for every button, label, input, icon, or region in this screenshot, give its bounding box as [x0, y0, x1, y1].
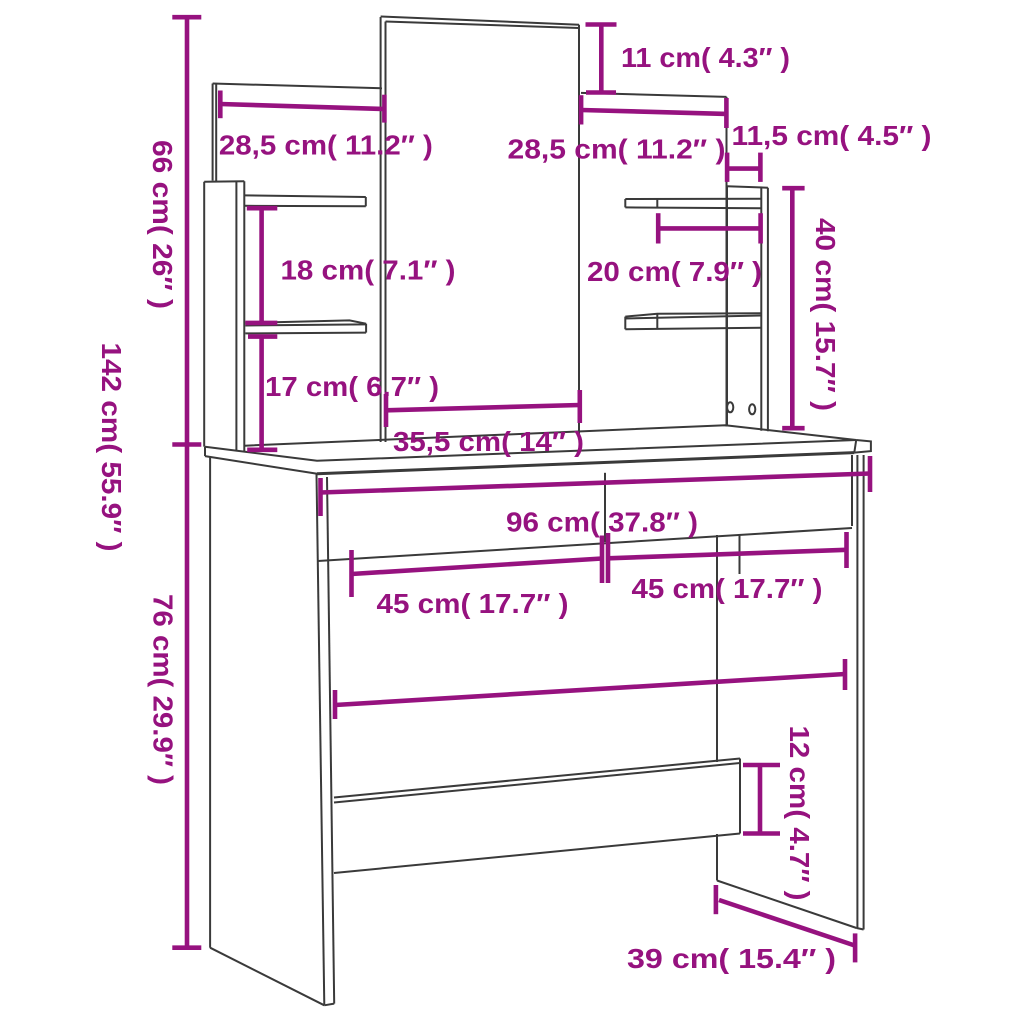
svg-text:11,5 cm( 4.5″ ): 11,5 cm( 4.5″ ) [732, 120, 932, 151]
svg-text:40 cm( 15.7″ ): 40 cm( 15.7″ ) [810, 218, 841, 411]
svg-text:17 cm( 6.7″ ): 17 cm( 6.7″ ) [265, 371, 439, 402]
svg-text:76 cm( 29.9″ ): 76 cm( 29.9″ ) [148, 594, 179, 785]
svg-text:39 cm( 15.4″ ): 39 cm( 15.4″ ) [627, 943, 836, 974]
svg-text:28,5 cm( 11.2″ ): 28,5 cm( 11.2″ ) [219, 130, 433, 161]
svg-text:28,5 cm( 11.2″ ): 28,5 cm( 11.2″ ) [508, 134, 726, 165]
svg-text:20 cm( 7.9″ ): 20 cm( 7.9″ ) [587, 256, 762, 287]
svg-text:35,5 cm( 14″ ): 35,5 cm( 14″ ) [393, 426, 584, 457]
svg-text:45 cm( 17.7″ ): 45 cm( 17.7″ ) [377, 588, 569, 619]
svg-text:18 cm( 7.1″ ): 18 cm( 7.1″ ) [281, 255, 456, 286]
svg-text:142 cm( 55.9″ ): 142 cm( 55.9″ ) [96, 343, 127, 552]
svg-text:45 cm( 17.7″ ): 45 cm( 17.7″ ) [632, 573, 823, 604]
svg-text:96 cm( 37.8″ ): 96 cm( 37.8″ ) [506, 507, 698, 538]
svg-text:12 cm( 4.7″ ): 12 cm( 4.7″ ) [784, 726, 815, 901]
svg-text:66 cm( 26″ ): 66 cm( 26″ ) [147, 140, 178, 309]
svg-text:11 cm( 4.3″ ): 11 cm( 4.3″ ) [621, 42, 790, 73]
